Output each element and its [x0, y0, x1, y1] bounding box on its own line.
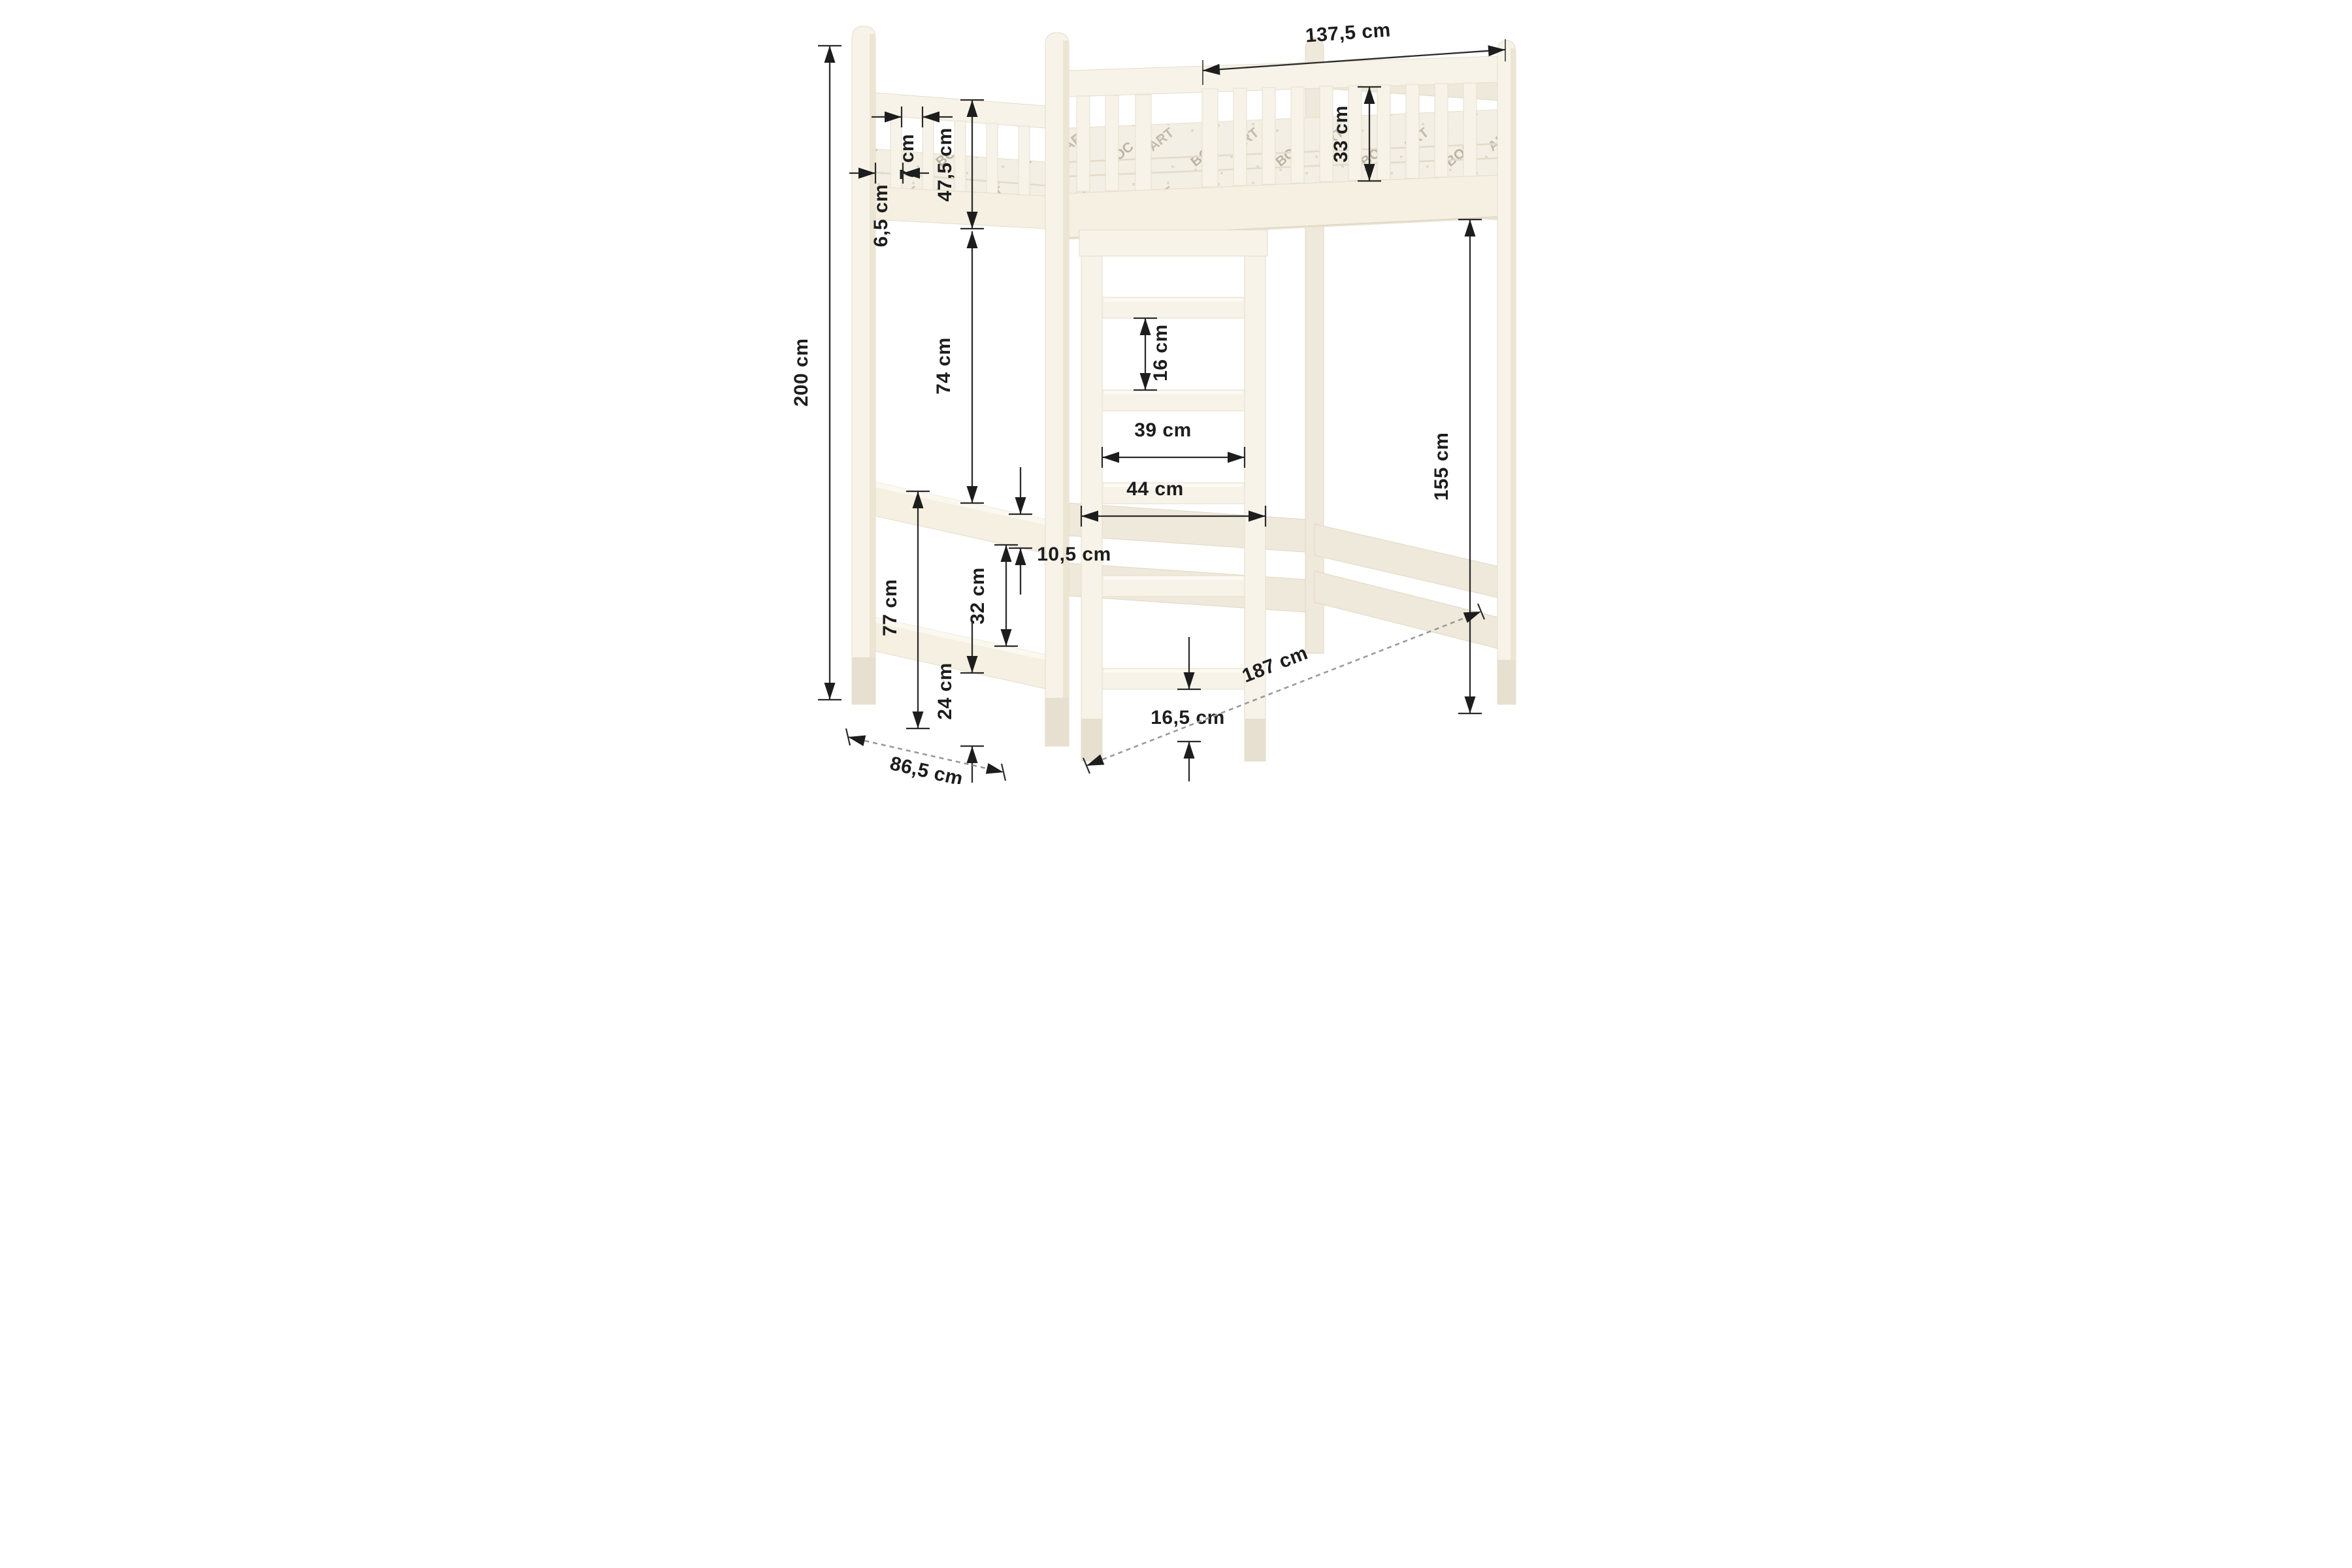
dimension-frame-to-rail: 74 cm [933, 231, 984, 503]
dimension-label-under-bed-height: 155 cm [1431, 433, 1452, 501]
dimension-bed-depth: 86,5 cm [846, 728, 1005, 784]
dimension-label-mattress-lip: 6,5 cm [870, 184, 892, 247]
ladder-hook-bar [1079, 230, 1267, 256]
dimension-rail-to-floor: 77 cm [879, 491, 930, 728]
guard-stile-left [1135, 95, 1151, 193]
dimension-ladder-inner-width: 39 cm [1102, 419, 1245, 468]
dimension-label-ladder-outer-width: 44 cm [1126, 478, 1184, 500]
ladder-stringer-left [1081, 230, 1102, 761]
dimension-label-bottom-rail-to-floor: 24 cm [934, 662, 956, 720]
dimension-label-side-rail-height: 10,5 cm [1037, 544, 1111, 565]
dimension-total-height: 200 cm [791, 46, 841, 700]
dimension-side-rail-gap: 32 cm [967, 545, 1018, 646]
dimension-label-bed-depth: 86,5 cm [888, 753, 965, 784]
diagram-stage: BOC ART [588, 0, 1764, 784]
dimension-rung-gap: 16 cm [1134, 318, 1171, 390]
dimension-label-guard-rail-height: 33 cm [1330, 105, 1352, 163]
dimension-label-guard-height-total: 47,5 cm [934, 127, 956, 202]
dimension-label-ladder-to-floor: 16,5 cm [1151, 707, 1225, 728]
dimension-label-frame-to-rail: 74 cm [933, 337, 955, 395]
dimension-ladder-to-floor: 16,5 cm [1151, 637, 1225, 781]
dimension-label-ladder-inner-width: 39 cm [1134, 419, 1192, 441]
loft-bed-technical-drawing: BOC ART [588, 0, 1764, 784]
dimension-label-total-height: 200 cm [791, 338, 812, 407]
dimension-label-side-rail-gap: 32 cm [967, 567, 988, 625]
guard-slats-right-panel [1233, 83, 1477, 186]
dimension-label-rail-to-floor: 77 cm [879, 579, 901, 636]
guard-stile-right [1202, 89, 1218, 187]
dimension-label-rung-gap: 16 cm [1150, 324, 1171, 382]
dimension-label-guard-panel-length: 137,5 cm [1305, 20, 1392, 47]
